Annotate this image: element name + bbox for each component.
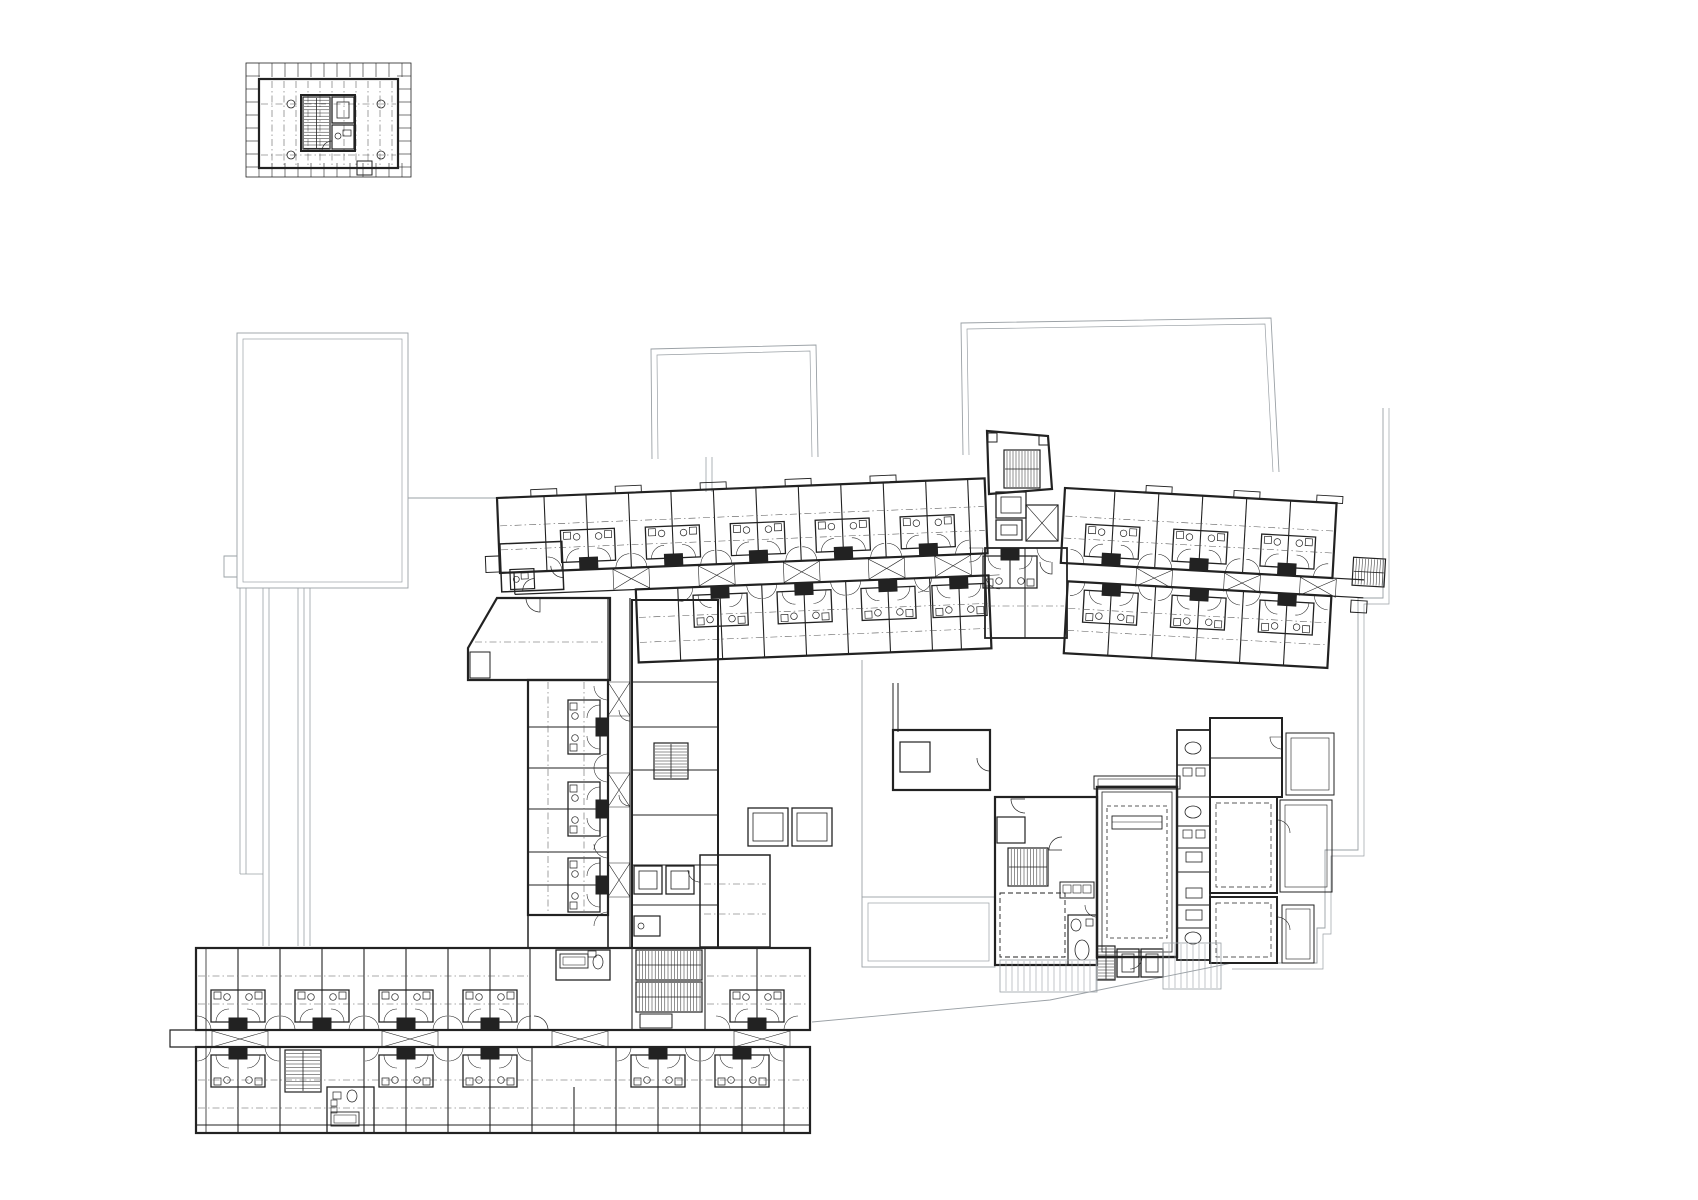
door-swing-icon (1295, 602, 1309, 616)
door-swing-icon (988, 556, 1001, 569)
wc-fixture (573, 533, 580, 540)
wall-rect (1000, 893, 1065, 957)
wc-fixture (874, 609, 881, 616)
pod-wall (481, 1047, 499, 1059)
pod-wall (423, 1078, 430, 1085)
door-swing-icon (897, 587, 911, 601)
fixture-ellipse (1075, 940, 1089, 960)
door-swing-icon (1158, 586, 1173, 601)
wc-fixture (729, 615, 736, 622)
wall-poly (170, 1030, 196, 1047)
room-divider (1196, 629, 1198, 661)
fixture-ellipse (1071, 919, 1081, 931)
door-swing-icon (1049, 837, 1062, 850)
bathroom-pod-pair (969, 548, 1051, 588)
pod-wall (906, 609, 913, 616)
bathroom-pod-pair (763, 581, 847, 624)
swing-triangle (953, 555, 972, 576)
wc-fixture (595, 533, 602, 540)
room-divider (1155, 493, 1159, 568)
door-swing-icon (685, 1047, 699, 1061)
door-swing-icon (1226, 558, 1241, 573)
pod-wall (634, 1078, 641, 1085)
bathroom-pod-pair (716, 521, 800, 564)
pod-wall (1190, 558, 1209, 571)
elevator-shaft (1117, 949, 1139, 977)
wc-fixture (996, 578, 1003, 585)
wall-rect (632, 600, 718, 948)
wall-rect (237, 333, 408, 588)
wall-rect (636, 575, 992, 662)
pod-wall (604, 530, 611, 537)
door-swing-icon (365, 1047, 379, 1061)
door-swing-icon (1264, 600, 1278, 614)
room-divider (586, 494, 587, 529)
door-swing-icon (736, 542, 750, 556)
bathroom-pod-pair (1156, 586, 1240, 631)
stair (303, 97, 330, 149)
door-swing-icon (1246, 591, 1261, 606)
room-divider (762, 584, 765, 657)
pod-wall (675, 1078, 682, 1085)
pod-wall (570, 703, 577, 710)
door-swing-icon (915, 578, 930, 593)
wc-fixture (935, 519, 942, 526)
bathroom-pod-pair (716, 990, 798, 1030)
wing-upper-right (1056, 481, 1389, 671)
fixture-ellipse (1185, 932, 1201, 944)
shaft-outer (1117, 949, 1139, 977)
swing-triangle (608, 773, 630, 790)
stair (1004, 450, 1040, 488)
pod-wall (1102, 553, 1121, 566)
wc-fixture (572, 893, 579, 900)
fixture-circle (335, 133, 341, 139)
wall-rect (1280, 800, 1332, 892)
wc-fixture (224, 994, 231, 1001)
wall-rect (1183, 830, 1192, 838)
wall-rect (563, 957, 585, 965)
swing-triangle (608, 682, 630, 699)
door-swing-icon (1246, 559, 1261, 574)
wing-upper-middle (483, 471, 1003, 668)
room-divider (544, 496, 547, 571)
room-divider (628, 493, 631, 568)
wall-rect (1107, 806, 1167, 938)
door-swing-icon (636, 1055, 649, 1068)
pod-wall (733, 992, 740, 999)
door-swing-icon (384, 1009, 397, 1022)
pod-wall (1127, 616, 1134, 623)
wing-left-group (468, 598, 832, 948)
pod-wall (214, 992, 221, 999)
door-swing-icon (587, 736, 600, 749)
door-swing-icon (747, 584, 762, 599)
pod-wall (570, 744, 577, 751)
room-divider (1289, 501, 1291, 536)
door-swing-icon (802, 546, 817, 561)
door-swing-icon (887, 543, 902, 558)
pod-wall (466, 992, 473, 999)
pod-wall (977, 607, 984, 614)
pod-wall (596, 800, 608, 818)
wall-rect (893, 730, 990, 790)
pod-wall (733, 525, 740, 532)
door-swing-icon (587, 818, 600, 831)
stair (1097, 946, 1115, 980)
door-swing-icon (667, 1055, 680, 1068)
door-swing-icon (720, 1055, 733, 1068)
elevator-shaft (1141, 949, 1163, 977)
room-divider (1108, 624, 1110, 656)
door-swing-icon (937, 534, 951, 548)
wc-fixture (572, 713, 579, 720)
wc-fixture (707, 616, 714, 623)
pod-wall (214, 1078, 221, 1085)
elevator-shaft (748, 808, 788, 846)
site-outlines-group (224, 318, 1389, 1022)
wall-rect (1286, 909, 1310, 959)
swing-triangle (886, 558, 905, 579)
pod-wall (423, 992, 430, 999)
shaft-inner (797, 813, 827, 841)
fixture-ellipse (1185, 742, 1201, 754)
door-swing-icon (594, 836, 608, 850)
pod-wall (570, 785, 577, 792)
shaft-outer (792, 808, 832, 846)
bathroom-pod-pair (281, 990, 363, 1030)
shaft-outer (666, 866, 694, 894)
pod-wall (774, 992, 781, 999)
door-swing-icon (216, 1009, 229, 1022)
pod-wall (738, 616, 745, 623)
pod-wall (903, 518, 910, 525)
wall-rect (1086, 919, 1093, 926)
wall-rect (900, 742, 930, 772)
bathroom-pod-pair (1246, 533, 1330, 578)
shaft-inner (753, 813, 783, 841)
pod-wall (733, 1047, 751, 1059)
door-swing-icon (870, 544, 885, 559)
door-swing-icon (197, 1047, 211, 1061)
door-swing-icon (1120, 545, 1134, 559)
room-divider (883, 482, 886, 557)
bathroom-pod-pair (801, 518, 885, 561)
door-swing-icon (433, 1016, 447, 1030)
pod-wall (804, 591, 805, 623)
door-swing-icon (587, 705, 600, 718)
door-swing-icon (1089, 591, 1103, 605)
pod-wall (1174, 618, 1181, 625)
swing-triangle (240, 1031, 268, 1047)
door-swing-icon (1313, 563, 1328, 578)
room-divider (1243, 498, 1247, 573)
door-swing-icon (1130, 957, 1142, 969)
fixture-ellipse (1185, 806, 1201, 818)
bathroom-pod-pair (365, 1047, 447, 1087)
swing-triangle (608, 880, 630, 897)
pod-wall (748, 1018, 766, 1030)
door-swing-icon (1070, 549, 1085, 564)
elevator-shaft (996, 492, 1026, 518)
room-divider (713, 489, 716, 564)
wall-rect (640, 1014, 672, 1028)
door-swing-icon (1207, 597, 1221, 611)
wall-rect (868, 903, 989, 961)
door-swing-icon (384, 1055, 397, 1068)
door-swing-icon (349, 1016, 363, 1030)
wc-fixture (572, 817, 579, 824)
door-swing-icon (782, 591, 796, 605)
corridor-door-swing (698, 565, 735, 586)
wc-fixture (896, 608, 903, 615)
swing-triangle (716, 565, 735, 586)
shaft-inner (639, 871, 657, 889)
bathroom-pod-pair (679, 584, 763, 627)
door-swing-icon (769, 1047, 783, 1061)
wall-line (1332, 578, 1364, 580)
swing-triangle (935, 556, 954, 577)
wall-poly (1232, 408, 1389, 969)
wc-fixture (1095, 613, 1102, 620)
grid-dashline (640, 628, 989, 642)
door-swing-icon (906, 535, 920, 549)
room-divider (678, 588, 681, 661)
pod-wall (944, 517, 951, 524)
spa-wing (893, 683, 1334, 992)
wing-bottom-group (170, 948, 810, 1133)
wall-rect (1177, 730, 1210, 960)
door-swing-icon (415, 1009, 428, 1022)
pod-wall (842, 519, 843, 551)
pod-wall (672, 526, 673, 558)
door-swing-icon (265, 1047, 279, 1061)
wc-fixture (1274, 538, 1281, 545)
pod-wall (1214, 621, 1221, 628)
wall-rect (1183, 768, 1192, 776)
door-swing-icon (216, 1055, 229, 1068)
door-swing-icon (365, 1016, 379, 1030)
bathroom-pod-pair (449, 990, 531, 1030)
door-swing-icon (1070, 581, 1085, 596)
door-swing-icon (698, 594, 712, 608)
door-swing-icon (1296, 555, 1310, 569)
door-swing-icon (499, 1055, 512, 1068)
wall-rect (560, 954, 588, 968)
pod-wall (697, 618, 704, 625)
swing-triangle (608, 699, 630, 716)
wc-fixture (658, 530, 665, 537)
wc-fixture (1186, 534, 1193, 541)
pod-wall (711, 586, 729, 599)
wc-fixture (1296, 540, 1303, 547)
wc-fixture (765, 526, 772, 533)
pod-wall (757, 523, 758, 555)
wc-fixture (308, 994, 315, 1001)
elevator-shaft (792, 808, 832, 846)
pod-wall (466, 1078, 473, 1085)
door-swing-icon (587, 894, 600, 907)
pod-wall (1197, 597, 1199, 629)
wc-fixture (1018, 578, 1025, 585)
door-swing-icon (682, 544, 696, 558)
wc-fixture (913, 520, 920, 527)
wall-rect (1098, 779, 1176, 786)
pod-wall (818, 522, 825, 529)
pod-wall (1261, 623, 1268, 630)
wc-fixture (680, 529, 687, 536)
pod-wall (587, 529, 588, 561)
swing-triangle (783, 562, 802, 583)
door-swing-icon (247, 1009, 260, 1022)
wc-fixture (850, 522, 857, 529)
pod-wall (1305, 539, 1312, 546)
pod-wall (229, 1047, 247, 1059)
swing-triangle (631, 568, 650, 589)
swing-triangle (762, 1031, 790, 1047)
pod-wall (919, 543, 937, 556)
door-swing-icon (968, 584, 982, 598)
shaft-inner (337, 102, 349, 118)
corridor-door-swing (868, 558, 905, 579)
pod-wall (1278, 593, 1297, 606)
pod-wall (859, 520, 866, 527)
stair (636, 950, 702, 980)
door-swing-icon (468, 1009, 481, 1022)
pod-wall (313, 1018, 331, 1030)
bathroom-pod-pair (1244, 591, 1328, 636)
door-swing-icon (821, 539, 835, 553)
bathroom-pod-pair (197, 1047, 279, 1087)
wall-rect (1216, 903, 1271, 957)
door-swing-icon (937, 585, 951, 599)
wall-rect (988, 433, 997, 442)
swing-triangle (552, 1031, 580, 1047)
swing-triangle (382, 1031, 410, 1047)
wc-fixture (1208, 535, 1215, 542)
door-swing-icon (955, 540, 970, 555)
wall-rect (1351, 600, 1368, 613)
door-swing-icon (197, 1016, 211, 1030)
corridor-door-swing (552, 1031, 608, 1047)
door-swing-icon (813, 590, 827, 604)
door-swing-icon (785, 547, 800, 562)
pod-wall (888, 587, 889, 619)
wall-rect (1210, 797, 1277, 893)
shaft-inner (1001, 497, 1021, 513)
stair-rail (1354, 571, 1384, 573)
shaft-outer (996, 492, 1026, 518)
pod-wall (822, 613, 829, 620)
door-swing-icon (831, 581, 846, 596)
swing-triangle (608, 790, 630, 807)
pod-wall (834, 547, 852, 560)
swing-triangle (698, 565, 717, 586)
pod-wall (570, 861, 577, 868)
pod-wall (481, 1018, 499, 1030)
door-swing-icon (1270, 737, 1282, 749)
wc-fixture (246, 994, 253, 1001)
wall-rect (1083, 885, 1091, 893)
wc-fixture (1271, 622, 1278, 629)
door-swing-icon (1176, 595, 1190, 609)
door-swing-icon (526, 598, 540, 612)
bathroom-pod-pair (847, 578, 931, 621)
door-swing-icon (587, 863, 600, 876)
pod-wall (255, 992, 262, 999)
pod-wall (563, 532, 570, 539)
pod-wall (749, 550, 767, 563)
wc-fixture (828, 523, 835, 530)
bathroom-pod-pair (1158, 528, 1242, 573)
pod-wall (950, 576, 968, 589)
pod-wall (879, 579, 897, 592)
corridor-door-swing (608, 773, 630, 807)
wall-rect (243, 339, 402, 582)
pod-wall (397, 1018, 415, 1030)
pod-wall (298, 992, 305, 999)
pod-wall (570, 826, 577, 833)
bathroom-pod-pair (701, 1047, 783, 1087)
tower-plan (246, 63, 411, 177)
wall-rect (331, 1100, 337, 1106)
door-swing-icon (433, 1047, 447, 1061)
elevator-shaft (996, 520, 1022, 540)
shaft-outer (634, 866, 662, 894)
swing-triangle (410, 1031, 438, 1047)
wall-rect (333, 1092, 341, 1099)
door-swing-icon (281, 1016, 295, 1030)
pod-wall (397, 1047, 415, 1059)
swing-triangle (212, 1031, 240, 1047)
pod-wall (1089, 526, 1096, 533)
wall-rect (196, 1047, 810, 1133)
pod-wall (1129, 529, 1136, 536)
pod-wall (1217, 534, 1224, 541)
wc-fixture (791, 613, 798, 620)
wall-rect (1216, 803, 1271, 887)
wall-rect (331, 1112, 359, 1126)
door-swing-icon (847, 580, 862, 595)
wall-rect (700, 855, 770, 947)
wc-fixture (476, 994, 483, 1001)
swing-triangle (734, 1031, 762, 1047)
shaft-inner (671, 871, 689, 889)
shaft-outer (332, 97, 354, 123)
shaft-outer (748, 808, 788, 846)
bathroom-pod-pair (886, 514, 970, 557)
room-divider (841, 484, 842, 519)
door-swing-icon (265, 1016, 279, 1030)
door-swing-icon (1314, 595, 1329, 610)
room-divider (805, 623, 806, 656)
shaft-outer (996, 520, 1022, 540)
bathroom-pod-pair (631, 524, 715, 567)
wall-rect (1282, 905, 1314, 963)
door-swing-icon (594, 686, 608, 700)
corridor-door-swing (382, 1031, 438, 1047)
door-swing-icon (1011, 799, 1025, 813)
room-divider (1113, 491, 1115, 526)
wall-rect (1286, 733, 1334, 795)
pod-wall (1199, 531, 1201, 563)
door-swing-icon (1226, 590, 1241, 605)
pod-wall (1176, 531, 1183, 538)
door-swing-icon (1120, 592, 1134, 606)
corridor-door-swing (608, 863, 630, 897)
door-swing-icon (300, 1009, 313, 1022)
door-swing-icon (1138, 553, 1153, 568)
